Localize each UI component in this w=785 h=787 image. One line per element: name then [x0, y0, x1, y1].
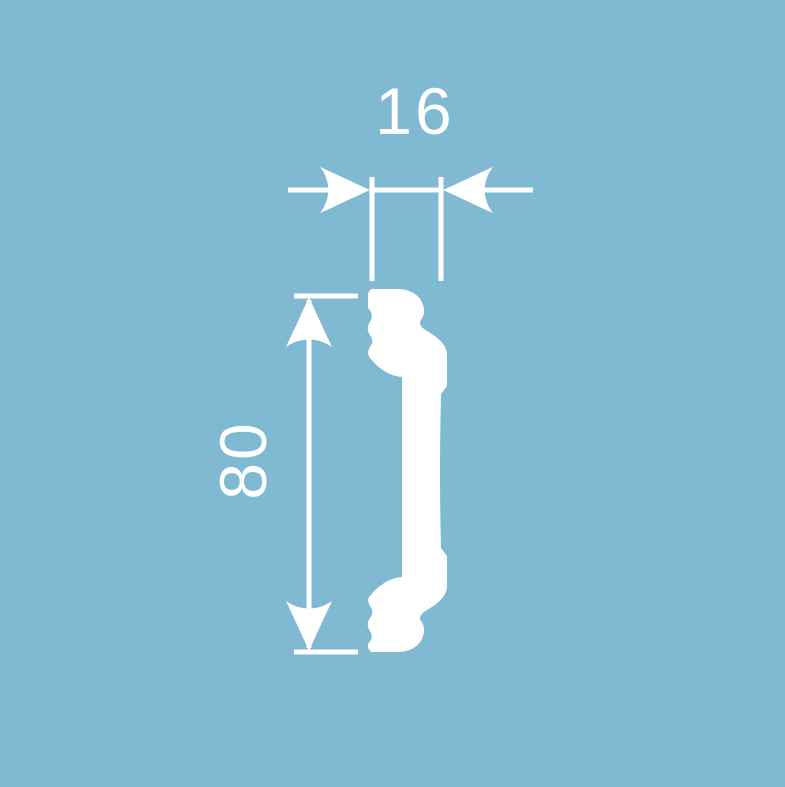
molding-profile-diagram: 16 80 [0, 0, 785, 787]
width-dimension-label: 16 [337, 78, 493, 144]
arrow-down-icon [286, 601, 332, 651]
height-dimension-label: 80 [210, 420, 276, 499]
molding-profile-shape [368, 289, 447, 652]
arrow-up-icon [286, 297, 332, 347]
width-dimension [288, 167, 533, 281]
height-dimension [286, 296, 358, 652]
